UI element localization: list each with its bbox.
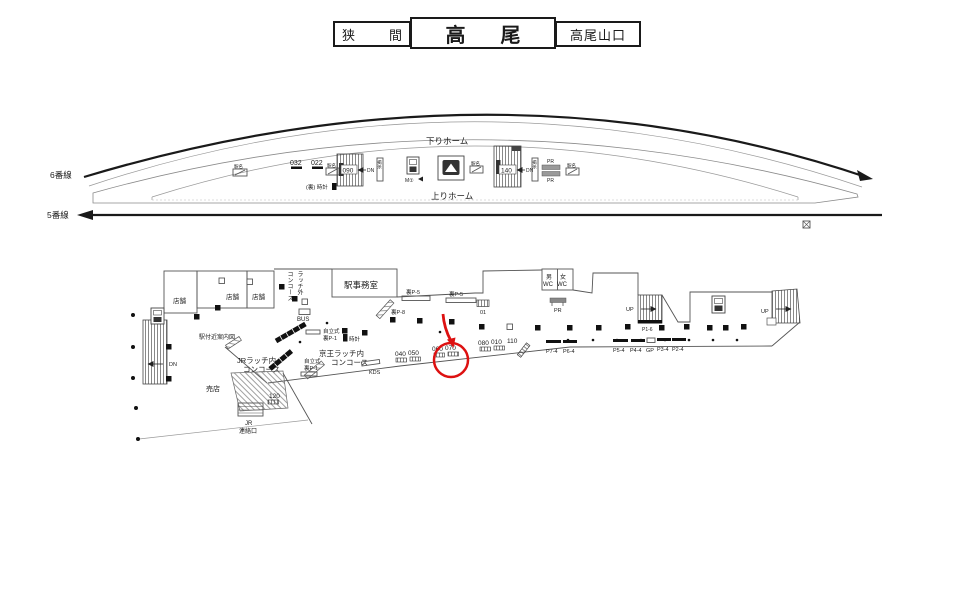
highlight-arrow-shaft	[443, 314, 451, 341]
selfstand-label: 自立式	[323, 327, 340, 335]
back-poster-p5: 裏P-5	[446, 290, 476, 303]
clock-icon: 時計	[343, 334, 361, 343]
kds-board: KDS	[361, 360, 380, 376]
map-drawing: 6番線 下りホーム 上りホーム 駅名 032 022	[0, 0, 960, 604]
pr-label: PR	[547, 159, 554, 165]
platform-section: 6番線 下りホーム 上りホーム 駅名 032 022	[47, 115, 882, 228]
shop-room	[197, 271, 247, 308]
kds-label: KDS	[369, 370, 381, 376]
pr-label: PR	[554, 308, 562, 314]
concourse-section: 店舗 店舗 店舗 駅事務室 ラッチ外 コンコース 男 WC 女 WC	[131, 269, 800, 441]
ad-position-032: 032	[290, 160, 302, 169]
vending-machine-icon	[712, 296, 725, 313]
wc-men-label: 男	[546, 274, 552, 281]
jr-link-stairs	[231, 371, 288, 411]
track5-arrowhead-icon	[77, 210, 93, 220]
forecourt-curve	[139, 420, 308, 439]
p5-back-label: 裏P-5	[406, 288, 420, 296]
floor-label: P2-4	[672, 347, 684, 353]
mountain-sign-icon	[438, 156, 464, 180]
clock-label: 時計	[349, 335, 361, 343]
down-home-label: 下りホーム	[426, 136, 468, 146]
dn-label: DN	[367, 168, 375, 174]
pos-022-label: 022	[311, 160, 323, 167]
wc-women-label: 女	[560, 273, 566, 281]
signboard-label: 掲示	[377, 159, 383, 170]
platform-outline	[93, 140, 858, 203]
p1-6-label: P1-6	[642, 327, 653, 333]
top-wall	[573, 273, 638, 295]
p1-back-label: 裏P-1	[304, 364, 318, 372]
pos-01-label: 01	[480, 310, 486, 316]
wc-label: WC	[557, 282, 568, 288]
station-ad-map: 狭間 高尾 高尾山口 6番線	[0, 0, 960, 604]
latch-out-label: コンコース	[286, 271, 293, 301]
vending-label: M①	[405, 178, 414, 184]
pos-090-label: 090	[343, 168, 354, 175]
freestanding-poster: 自立式 裏P-1	[306, 327, 340, 342]
kiosk-label: 売店	[206, 384, 220, 393]
jr-gate-label: 連絡口	[239, 427, 257, 435]
floor-label: GP	[646, 348, 654, 354]
up-stairs: UP P1-6	[626, 295, 662, 333]
track6-label: 6番線	[50, 170, 72, 180]
pos-110-label: 110	[507, 338, 518, 345]
dn-stairs: DN	[143, 320, 177, 384]
floor-label: P6-4	[563, 349, 575, 355]
vending-machine-icon	[151, 308, 164, 324]
wc-rooms: 男 WC 女 WC	[542, 269, 573, 290]
up-home-label: 上りホーム	[431, 191, 473, 201]
signboard-label: 掲示	[532, 159, 538, 170]
area-map-label: 駅付近案内図	[199, 333, 235, 341]
shop-room	[247, 271, 274, 308]
pos-080-label: 080	[478, 340, 489, 347]
floor-label: P7-4	[546, 349, 558, 355]
jr-latch-label: JRラッチ内	[237, 355, 276, 365]
floor-label: P4-4	[630, 348, 642, 354]
pos-010-label: 010	[491, 339, 502, 346]
bus-label: BUS	[297, 317, 309, 323]
wc-label: WC	[543, 282, 554, 288]
clock-back-label: (裏) 時計	[306, 183, 328, 191]
shop-room	[164, 271, 197, 313]
p5-back-label: 裏P-5	[449, 290, 463, 298]
up-stairs: UP	[761, 289, 800, 325]
shop-label: 店舗	[226, 292, 240, 301]
selfstand-label: 自立式	[304, 357, 321, 365]
boxed-x-icon	[803, 221, 810, 228]
pos-032-label: 032	[290, 160, 302, 167]
station-office-label: 駅事務室	[344, 280, 379, 290]
keio-latch-label: 京王ラッチ内	[319, 348, 364, 358]
passage-wall	[283, 373, 312, 424]
track6-arrowhead-icon	[857, 170, 873, 181]
up-label: UP	[626, 307, 634, 313]
shop-label: 店舗	[252, 292, 266, 301]
pr-bench-icon: PR	[550, 298, 566, 314]
ad-position-01: 01	[477, 300, 489, 316]
floor-label: P5-4	[613, 348, 625, 354]
bus-stop-icon: BUS	[297, 309, 310, 323]
pos-120-label: 120	[269, 393, 280, 400]
p1-back-label: 裏P-1	[323, 334, 337, 342]
pr-label: PR	[547, 178, 554, 184]
ticket-gate-row	[275, 322, 307, 343]
track5-label: 5番線	[47, 210, 69, 220]
pos-070-label: 070	[445, 345, 456, 352]
latch-out-label: ラッチ外	[296, 271, 303, 296]
pos-140-label: 140	[501, 168, 512, 175]
p8-back-label: 裏P-8	[391, 308, 405, 316]
pos-050-label: 050	[408, 350, 419, 357]
ad-position-120: 120	[268, 393, 280, 404]
pos-040-label: 040	[395, 351, 406, 358]
floor-label: P3-4	[657, 347, 669, 353]
shop-label: 店舗	[173, 296, 187, 305]
right-wall	[772, 322, 800, 346]
ad-position-022: 022	[311, 160, 323, 169]
back-poster-p5: 裏P-5	[402, 288, 430, 301]
dn-label: DN	[169, 362, 177, 368]
up-label: UP	[761, 309, 769, 315]
ad-position-row: 040 050 060 070 080 010 110	[395, 338, 530, 362]
